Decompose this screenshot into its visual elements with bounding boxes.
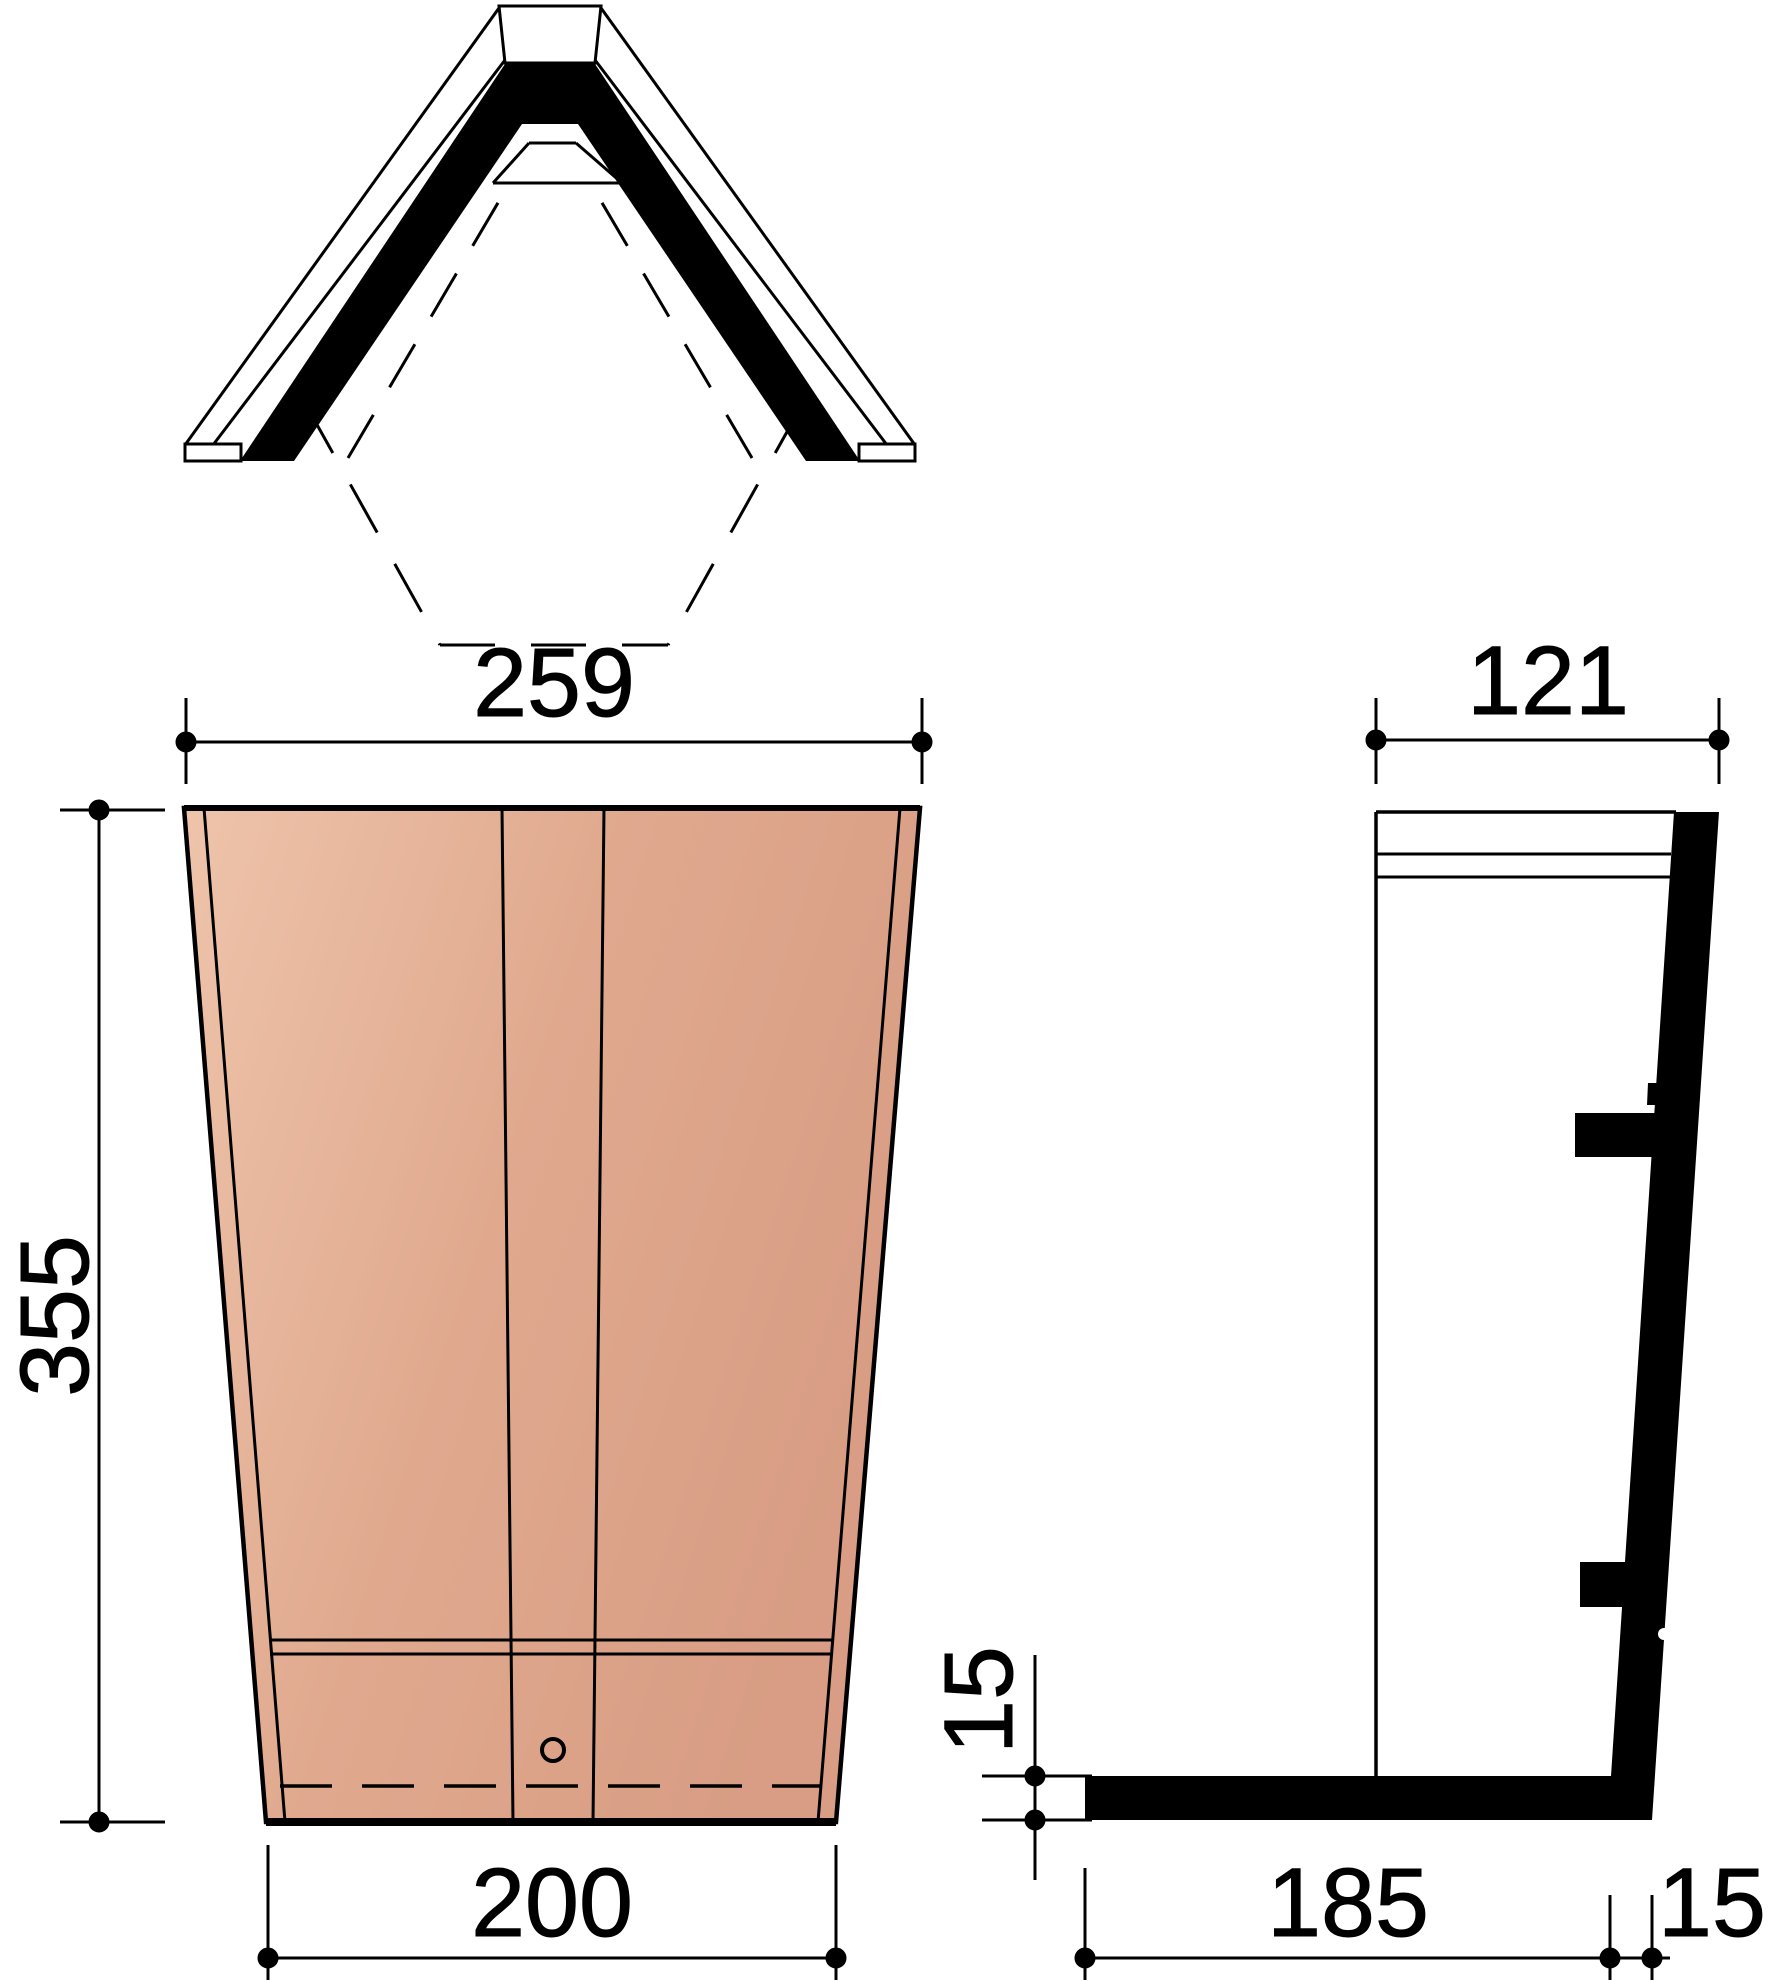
technical-drawing-canvas: 259 355 200 121	[0, 0, 1768, 1982]
side-view-nail-hole-notch	[1658, 1628, 1670, 1640]
technical-drawing-page: 259 355 200 121	[0, 0, 1768, 1982]
top-view	[185, 6, 915, 645]
dim-dot	[89, 1812, 109, 1832]
dim-dot	[826, 1948, 846, 1968]
dim-dot	[912, 732, 932, 752]
dim-front-height: 355	[0, 800, 165, 1832]
dim-dot	[1600, 1948, 1620, 1968]
dim-side-top-width: 121	[1366, 626, 1729, 784]
dim-side-bottom: 185 15	[1075, 1848, 1766, 1980]
top-view-ridge-cap	[499, 6, 601, 63]
front-view-tile-face	[184, 808, 920, 1822]
top-view-inner-edge-right	[595, 60, 887, 445]
dim-dot	[1709, 730, 1729, 750]
top-view-endcap-right	[859, 444, 915, 461]
dim-dot	[1025, 1766, 1045, 1786]
dim-front-top-width: 259	[176, 628, 932, 784]
dim-label-259: 259	[473, 628, 635, 737]
top-view-hidden-skirt-right	[668, 405, 802, 645]
front-view	[184, 808, 920, 1822]
side-view	[1085, 812, 1719, 1820]
dim-side-foot-height: 15	[924, 1646, 1092, 1880]
dim-dot	[176, 732, 196, 752]
side-view-upper-lug-nub	[1647, 1083, 1658, 1105]
dim-dot	[1366, 730, 1386, 750]
side-view-lower-lug	[1580, 1562, 1627, 1607]
dim-label-121: 121	[1467, 626, 1629, 735]
dim-dot	[1075, 1948, 1095, 1968]
dim-dot	[89, 800, 109, 820]
top-view-inner-edge-left	[213, 60, 505, 445]
dim-label-355: 355	[0, 1235, 109, 1397]
dim-label-15-side: 15	[924, 1646, 1033, 1754]
top-view-black-chevron-band	[240, 64, 860, 461]
dim-dot	[1025, 1810, 1045, 1830]
side-view-upper-lug	[1575, 1113, 1656, 1157]
dim-label-185: 185	[1267, 1848, 1429, 1957]
dim-dot	[258, 1948, 278, 1968]
dim-label-15-bottom: 15	[1658, 1848, 1766, 1957]
dim-front-bottom-width: 200	[258, 1845, 846, 1980]
top-view-endcap-left	[185, 444, 241, 461]
dim-label-200: 200	[471, 1848, 633, 1957]
top-view-hidden-skirt-left	[306, 405, 440, 645]
side-view-profile-body	[1085, 812, 1719, 1820]
